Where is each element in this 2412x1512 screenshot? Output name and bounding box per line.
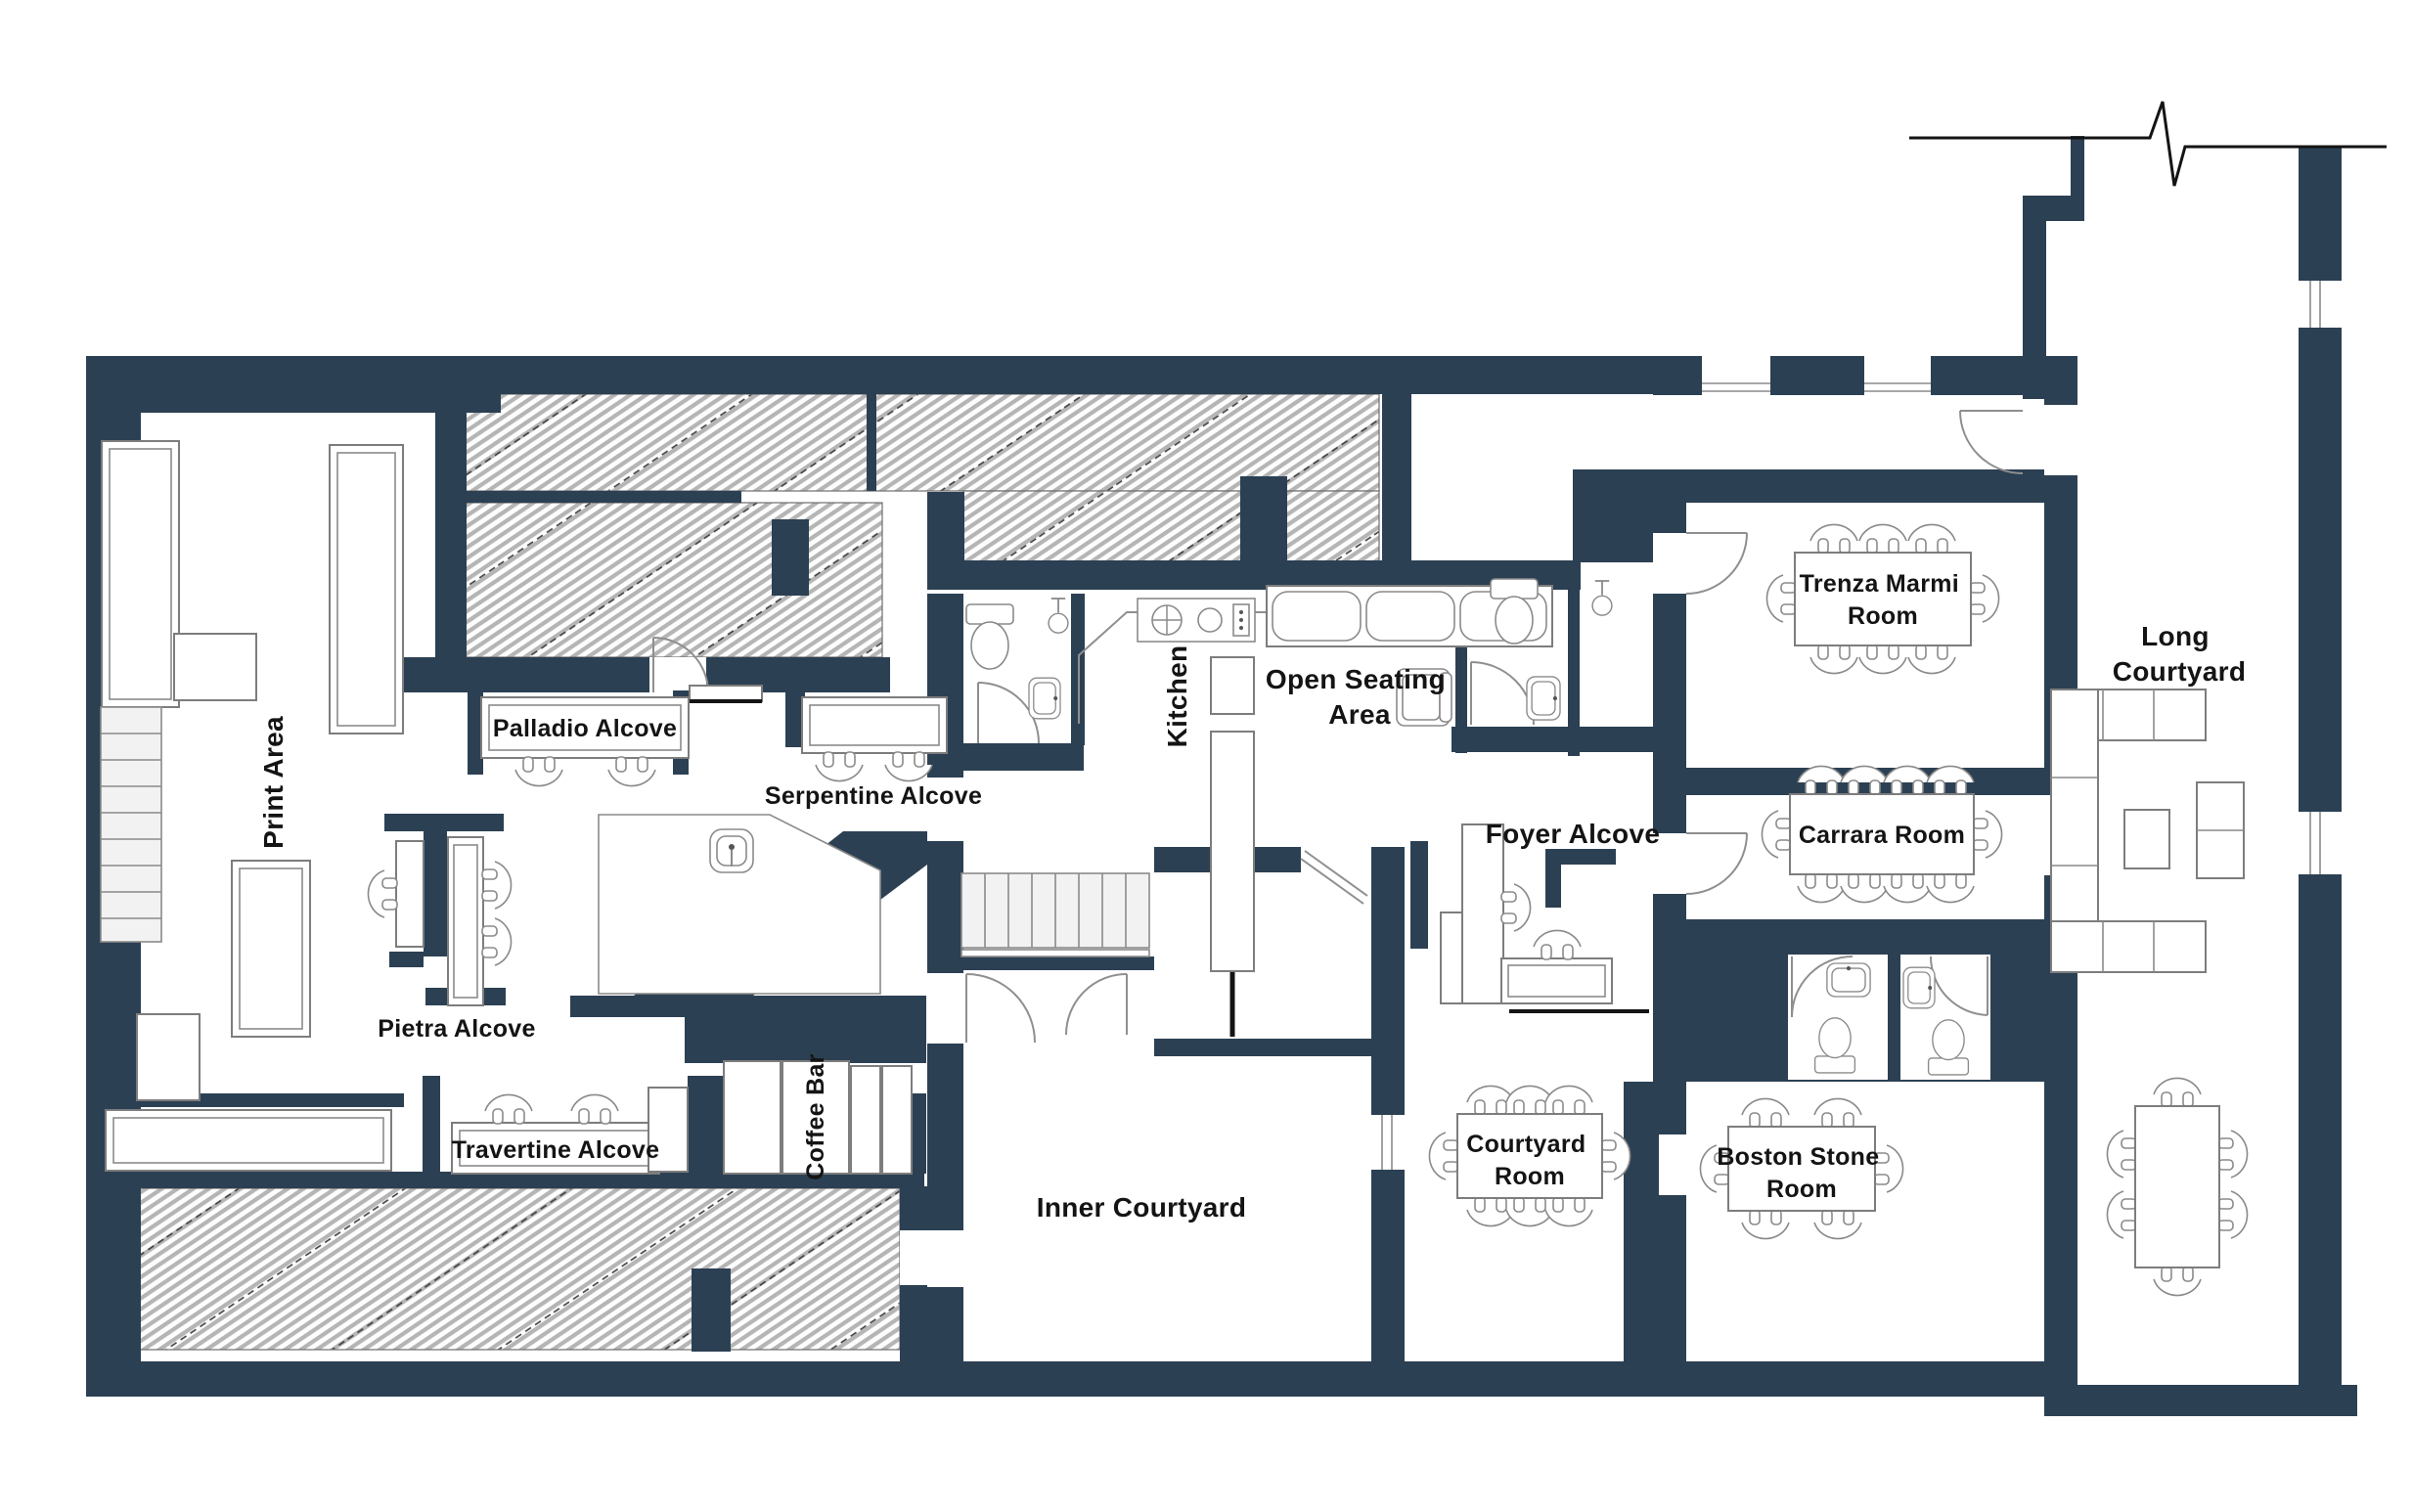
room-boston-stone: Boston Stone Room (1700, 1098, 1902, 1238)
label-serpentine-alcove: Serpentine Alcove (765, 782, 982, 810)
room-palladio-alcove: Palladio Alcove (481, 697, 689, 786)
window (1702, 356, 1770, 397)
room-print-area: Print Area (101, 441, 403, 1171)
door (1686, 533, 1747, 594)
label-foyer-alcove: Foyer Alcove (1486, 819, 1660, 849)
room-courtyard: Courtyard Room (1429, 1086, 1630, 1225)
floor-plan-svg: Print Area Palladio Alcove Serpentine Al… (0, 0, 2412, 1512)
door (966, 974, 1035, 1043)
shelving-unit (101, 707, 161, 942)
room-foyer-alcove: Foyer Alcove (1441, 819, 1660, 1011)
window (2299, 812, 2342, 874)
door (1301, 851, 1367, 904)
room-travertine-alcove: Travertine Alcove (452, 1088, 688, 1174)
staircase (961, 873, 1149, 956)
label-kitchen: Kitchen (1162, 645, 1192, 748)
side-bench (2197, 782, 2244, 878)
door (1066, 974, 1127, 1035)
room-coffee-bar: Coffee Bar (724, 1053, 912, 1179)
hatched-area-bottom (102, 1188, 900, 1350)
label-palladio-alcove: Palladio Alcove (493, 715, 677, 742)
coffee-table (2124, 810, 2169, 868)
label-print-area: Print Area (258, 716, 289, 849)
window (1371, 1115, 1405, 1170)
label-long-courtyard: Long Courtyard (2113, 621, 2247, 687)
door (1471, 662, 1534, 725)
label-carrara-room: Carrara Room (1799, 822, 1965, 849)
floor-plan-page: Print Area Palladio Alcove Serpentine Al… (0, 0, 2412, 1512)
window (2299, 281, 2342, 328)
label-coffee-bar: Coffee Bar (802, 1053, 829, 1179)
hatched-area-top-right (963, 491, 1379, 564)
label-inner-courtyard: Inner Courtyard (1037, 1192, 1247, 1223)
door (1960, 411, 2023, 473)
room-trenza-marmi: Trenza Marmi Room (1766, 524, 1998, 673)
window (1864, 356, 1931, 397)
room-long-courtyard: Long Courtyard (2051, 621, 2248, 1296)
kitchen-bathroom (966, 599, 1068, 719)
room-inner-courtyard: Inner Courtyard (1037, 1192, 1247, 1223)
long-courtyard-table (2107, 1078, 2247, 1295)
room-pietra-alcove: Pietra Alcove (368, 837, 535, 1043)
label-travertine-alcove: Travertine Alcove (452, 1136, 660, 1164)
door (1686, 833, 1747, 894)
stove (1138, 599, 1255, 642)
hatched-area-mid-left (458, 503, 882, 657)
label-pietra-alcove: Pietra Alcove (378, 1015, 535, 1043)
